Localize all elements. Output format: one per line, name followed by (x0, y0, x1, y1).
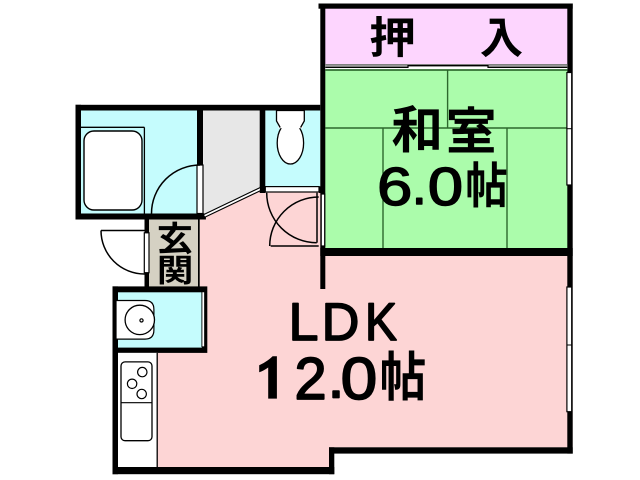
svg-text:.: . (412, 156, 427, 216)
svg-text:L: L (289, 293, 319, 351)
svg-text:2: 2 (295, 346, 327, 412)
svg-text:0: 0 (341, 346, 377, 413)
svg-text:0: 0 (428, 157, 463, 217)
svg-text:6: 6 (377, 157, 412, 217)
svg-text:K: K (365, 293, 397, 352)
